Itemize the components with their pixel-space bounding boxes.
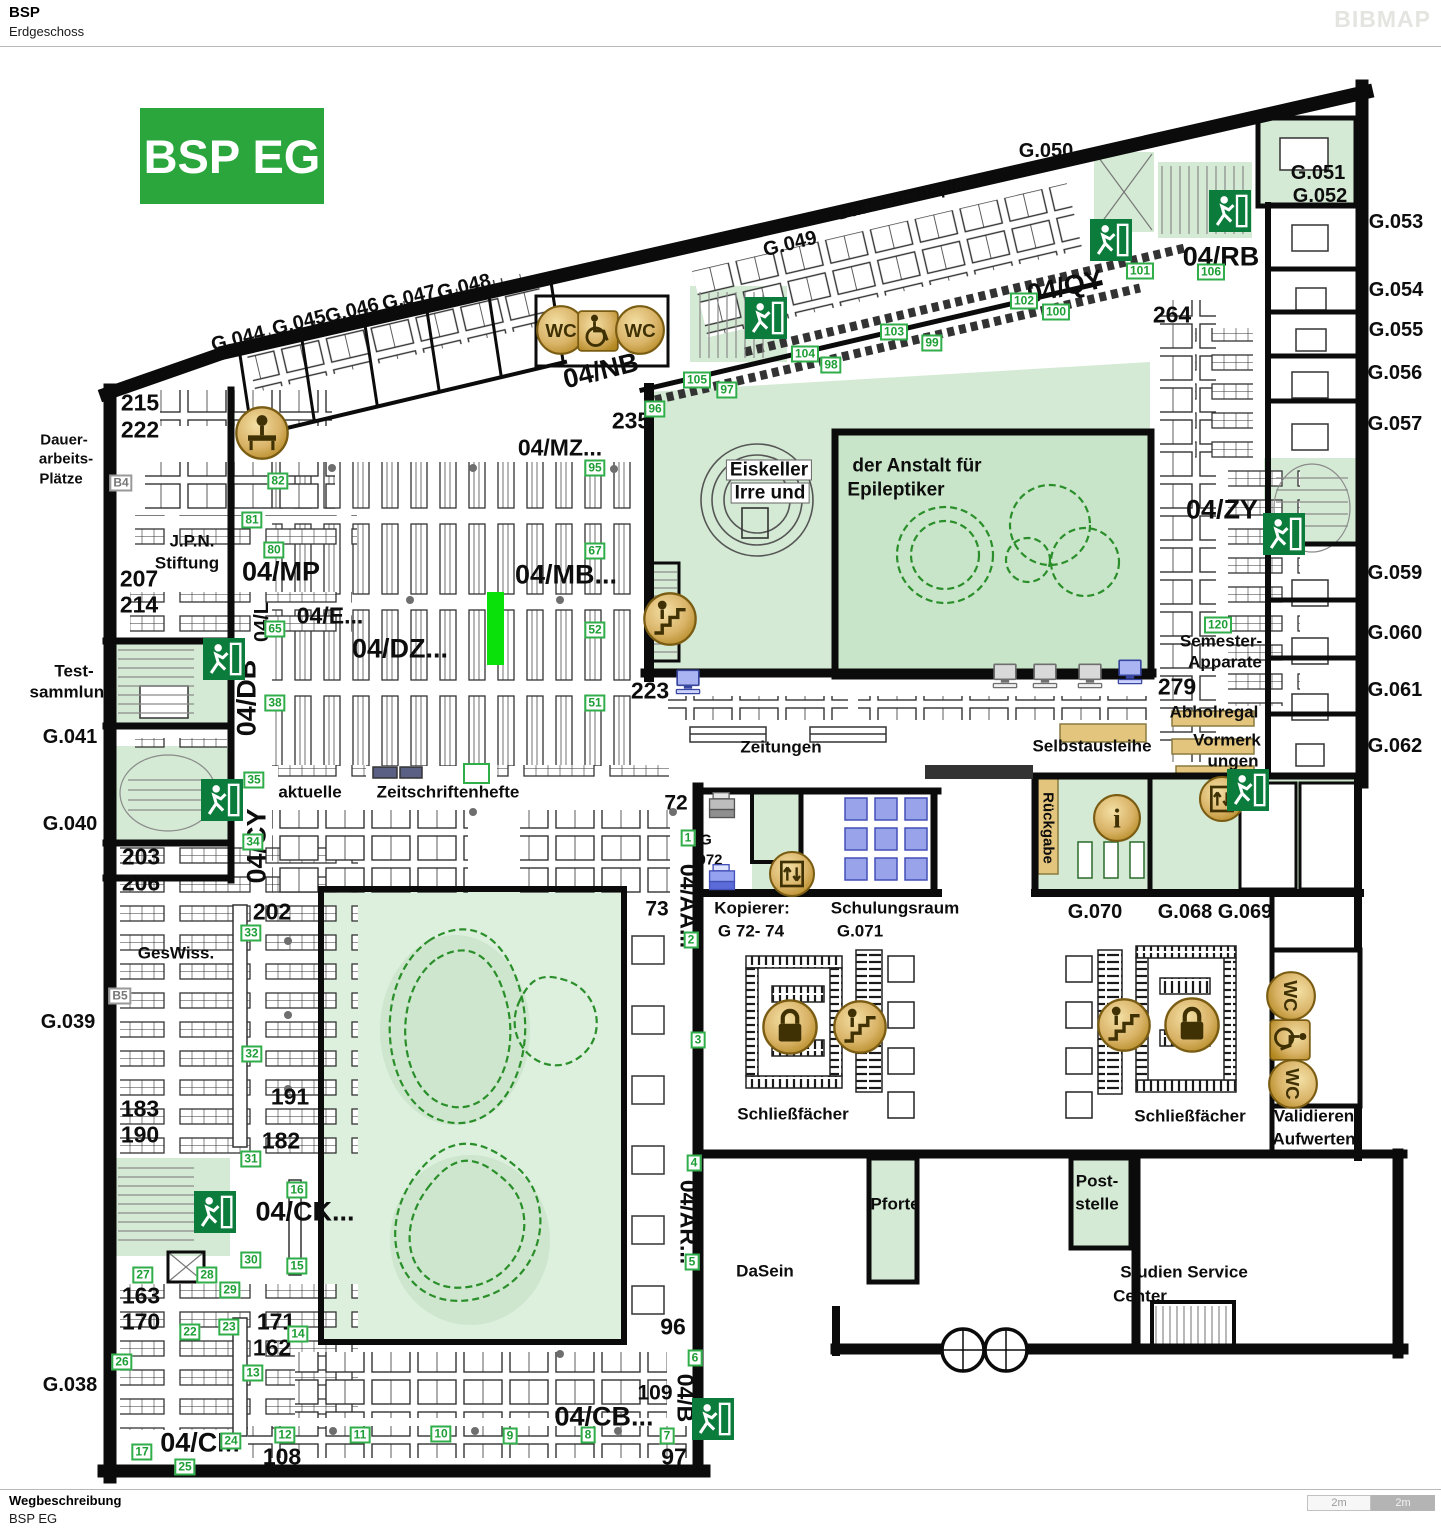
label-g-048: G.048 [435,271,493,304]
shelf-marker-99: 99 [921,335,942,352]
shelf-marker-23: 23 [218,1319,239,1336]
label-r-ckgabe: Rückgabe [1041,792,1056,864]
label-04-cb: 04/CB... [554,1404,653,1431]
label-183: 183 [121,1098,159,1121]
pc-gray-icon [1075,661,1105,691]
label-04-ar: 04/AR... [677,1180,700,1264]
label-arbeits: arbeits- [39,452,93,467]
shelf-marker-11: 11 [350,1427,371,1444]
label-04-e: 04/E... [297,605,363,628]
label-g-039: G.039 [41,1012,95,1032]
footer: Wegbeschreibung BSP EG 2m 2m [0,1489,1441,1531]
label-irre-und: Irre und [731,483,810,504]
label-dauerarbeitspl-tze: Dauerarbeitsplätze [836,169,988,222]
label-g-050: G.050 [1019,141,1073,161]
shelf-marker-101: 101 [1126,263,1154,280]
label-pl-tze: Plätze [39,472,82,487]
annotation-layer: G.044G.045G.046G.047G.048G.049Dauerarbei… [0,0,1441,1531]
shelf-marker-3: 3 [691,1032,706,1049]
label-g-051: G.051 [1291,163,1345,183]
route-heading: Wegbeschreibung [9,1493,121,1508]
label-kopierer: Kopierer: [714,900,790,917]
shelf-marker-51: 51 [584,695,605,712]
label-validieren: Validieren [1274,1108,1354,1125]
scale-segment: 2m [1307,1495,1371,1511]
shelf-marker-7: 7 [660,1428,675,1445]
exit-icon [692,1398,734,1440]
label-g-72-74: G 72- 74 [718,923,784,940]
label-eiskeller: Eiskeller [726,460,812,481]
label-163: 163 [122,1285,160,1308]
shelf-marker-30: 30 [240,1252,261,1269]
label-test: Test- [54,663,93,680]
label-g-049: G.049 [761,228,819,261]
label-g-059: G.059 [1368,563,1422,583]
label-215: 215 [121,392,159,415]
shelf-marker-38: 38 [264,695,285,712]
label-72: 72 [664,793,687,814]
header: BSP Erdgeschoss BIBMAP [0,0,1441,47]
label-g-057: G.057 [1368,414,1422,434]
shelf-marker-105: 105 [683,372,711,389]
exit-icon [203,638,245,680]
wc-icon [1265,970,1317,1022]
label-g-040: G.040 [43,814,97,834]
pc-blue-icon [1115,657,1145,687]
map-scale: 2m 2m [1307,1495,1435,1511]
label-g-055: G.055 [1369,320,1423,340]
label-epileptiker: Epileptiker [847,481,944,500]
wc-icon [614,304,666,356]
label-g-056: G.056 [1368,363,1422,383]
label-center: Center [1113,1288,1167,1305]
label-aktuelle: aktuelle [278,784,341,801]
label-206: 206 [122,872,160,895]
label-g-046: G.046 [323,295,381,328]
lock-icon [1163,996,1221,1054]
label-279: 279 [1158,676,1196,699]
label-g-038: G.038 [43,1375,97,1395]
pc-blue-icon [673,667,703,697]
label-abholregal: Abholregal [1170,704,1259,721]
shelf-marker-29: 29 [219,1282,240,1299]
label-g-068-g-069: G.068 G.069 [1158,902,1273,922]
label-g-044: G.044 [209,323,267,356]
shelf-marker-102: 102 [1010,293,1038,310]
label-pforte: Pforte [870,1196,919,1213]
label-202: 202 [253,901,291,924]
stairs-icon [832,999,888,1055]
label-ungen: ungen [1208,753,1259,770]
label-g-052: G.052 [1293,186,1347,206]
exit-icon [1209,190,1251,232]
shelf-marker-25: 25 [174,1459,195,1476]
label-264: 264 [1153,304,1191,327]
shelf-marker-98: 98 [820,357,841,374]
exit-icon [1227,769,1269,811]
exit-icon [194,1191,236,1233]
shelf-marker-67: 67 [584,543,605,560]
label-223: 223 [631,680,669,703]
shelf-marker-100: 100 [1042,304,1070,321]
exit-icon [1263,513,1305,555]
shelf-marker-32: 32 [241,1046,262,1063]
shelf-marker-8: 8 [581,1427,596,1444]
label-g-047: G.047 [380,282,438,315]
wc-icon [1267,1058,1319,1110]
persondesk-icon [234,405,290,461]
shelf-marker-97: 97 [716,382,737,399]
shelf-marker-13: 13 [242,1365,263,1382]
shelf-marker-4: 4 [687,1155,702,1172]
label-04-mz: 04/MZ... [518,437,602,460]
label-182: 182 [262,1130,300,1153]
label-190: 190 [121,1124,159,1147]
label-stelle: stelle [1075,1196,1118,1213]
shelf-marker-5: 5 [685,1254,700,1271]
label-162: 162 [253,1337,291,1360]
label-post: Post- [1076,1173,1119,1190]
label-g-053: G.053 [1369,212,1423,232]
shelf-marker-26: 26 [111,1354,132,1371]
label-214: 214 [120,594,158,617]
info-icon [1092,793,1142,843]
shelf-marker-27: 27 [132,1267,153,1284]
label-g-045: G.045 [270,307,328,340]
label-dauer: Dauer- [40,433,88,448]
lock-icon [761,998,819,1056]
label-73: 73 [645,899,668,920]
label-schlie-f-cher: Schließfächer [737,1106,849,1123]
label-g-062: G.062 [1368,736,1422,756]
label-selbstausleihe: Selbstausleihe [1032,738,1151,755]
label-g-060: G.060 [1368,623,1422,643]
label-203: 203 [122,846,160,869]
exit-icon [745,297,787,339]
shelf-marker-33: 33 [240,925,261,942]
pc-gray-icon [1030,661,1060,691]
shelf-marker-103: 103 [880,324,908,341]
label-g-054: G.054 [1369,280,1423,300]
copier-blue-icon [706,862,738,894]
gray-marker-b5: B5 [108,988,131,1005]
shelf-marker-82: 82 [267,473,288,490]
shelf-marker-15: 15 [286,1258,307,1275]
shelf-marker-22: 22 [179,1324,200,1341]
label-j-p-n: J.P.N. [169,533,214,550]
scale-segment: 2m [1371,1495,1435,1511]
label-sammlung: sammlung [29,684,114,701]
label-geswiss: GesWiss. [138,945,214,962]
route-text: BSP EG [9,1511,57,1526]
label-apparate: Apparate [1188,654,1262,671]
label-g-041: G.041 [43,727,97,747]
shelf-marker-120: 120 [1204,617,1232,634]
label-96: 96 [660,1316,686,1339]
shelf-marker-34: 34 [242,834,263,851]
wheelchair-icon [1269,1019,1311,1061]
label-aufwerten: Aufwerten [1272,1131,1355,1148]
label-dasein: DaSein [736,1263,794,1280]
label-g-061: G.061 [1368,680,1422,700]
shelf-marker-65: 65 [264,621,285,638]
shelf-marker-24: 24 [220,1433,241,1450]
label-170: 170 [122,1311,160,1334]
label-108: 108 [263,1446,301,1469]
shelf-marker-17: 17 [131,1444,152,1461]
label-97: 97 [661,1446,687,1469]
label-stiftung: Stiftung [155,555,219,572]
shelf-marker-28: 28 [196,1267,217,1284]
stairs-icon [642,591,698,647]
label-222: 222 [121,419,159,442]
shelf-marker-10: 10 [430,1426,451,1443]
floor-subtitle: Erdgeschoss [9,24,84,39]
label-g-070: G.070 [1068,902,1122,922]
pc-gray-icon [990,661,1020,691]
shelf-marker-2: 2 [684,932,699,949]
label-04-dz: 04/DZ... [352,636,448,663]
shelf-marker-96: 96 [644,401,665,418]
label-04-mp: 04/MP [242,559,320,586]
exit-icon [201,779,243,821]
shelf-marker-95: 95 [584,460,605,477]
shelf-marker-80: 80 [263,542,284,559]
shelf-marker-14: 14 [287,1326,308,1343]
shelf-marker-9: 9 [503,1428,518,1445]
gray-marker-b4: B4 [109,475,132,492]
label-zeitungen: Zeitungen [740,739,821,756]
label-04-ck: 04/CK... [255,1199,354,1226]
stairs-icon [1096,997,1152,1053]
shelf-marker-106: 106 [1197,264,1225,281]
wheelchair-icon [577,310,619,352]
exit-icon [1090,219,1132,261]
bibmap-logo: BIBMAP [1334,6,1431,33]
label-191: 191 [271,1086,309,1109]
page-title: BSP [9,4,40,21]
copier-gray-icon [706,790,738,822]
shelf-marker-6: 6 [688,1350,703,1367]
floor-badge: BSP EG [140,108,324,204]
shelf-marker-104: 104 [791,346,819,363]
shelf-marker-1: 1 [681,830,696,847]
shelf-marker-52: 52 [584,622,605,639]
shelf-marker-31: 31 [240,1151,261,1168]
label-schlie-f-cher: Schließfächer [1134,1108,1246,1125]
label-der-anstalt-f-r: der Anstalt für [852,457,981,476]
label-109: 109 [637,1383,672,1404]
label-semester: Semester- [1180,633,1262,650]
label-207: 207 [120,568,158,591]
label-04-mb: 04/MB... [515,562,617,589]
elevator-icon [768,850,816,898]
label-g-071: G.071 [837,923,883,940]
label-g: G [700,833,712,848]
label-04-zy: 04/ZY [1186,497,1258,524]
bibmap-app: BSP Erdgeschoss BIBMAP [0,0,1441,1531]
label-vormerk: Vormerk [1193,732,1261,749]
shelf-marker-35: 35 [243,772,264,789]
label-studien-service: Studien Service [1120,1264,1248,1281]
label-zeitschriftenhefte: Zeitschriftenhefte [377,784,520,801]
label-schulungsraum: Schulungsraum [831,900,959,917]
shelf-marker-12: 12 [274,1427,295,1444]
shelf-marker-81: 81 [241,512,262,529]
shelf-marker-16: 16 [286,1182,307,1199]
